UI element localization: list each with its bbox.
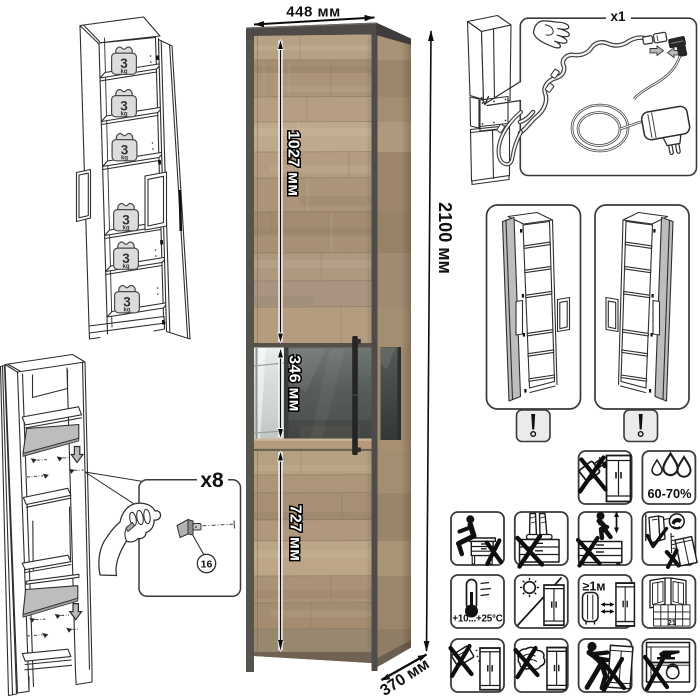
svg-text:x1: x1 [610,9,626,24]
svg-text:60-70%: 60-70% [647,486,692,501]
svg-text:16: 16 [201,559,213,571]
svg-text:x8: x8 [200,469,224,492]
svg-text:2100 мм: 2100 мм [435,202,455,274]
svg-text:≥1м: ≥1м [583,580,606,594]
svg-text:448 мм: 448 мм [286,4,340,21]
svg-text:+10...+25°C: +10...+25°C [452,614,502,625]
svg-text:1027 мм: 1027 мм [285,131,302,197]
svg-text:727 мм: 727 мм [287,505,304,562]
svg-text:346 мм: 346 мм [286,355,303,412]
svg-text:21: 21 [668,618,677,627]
